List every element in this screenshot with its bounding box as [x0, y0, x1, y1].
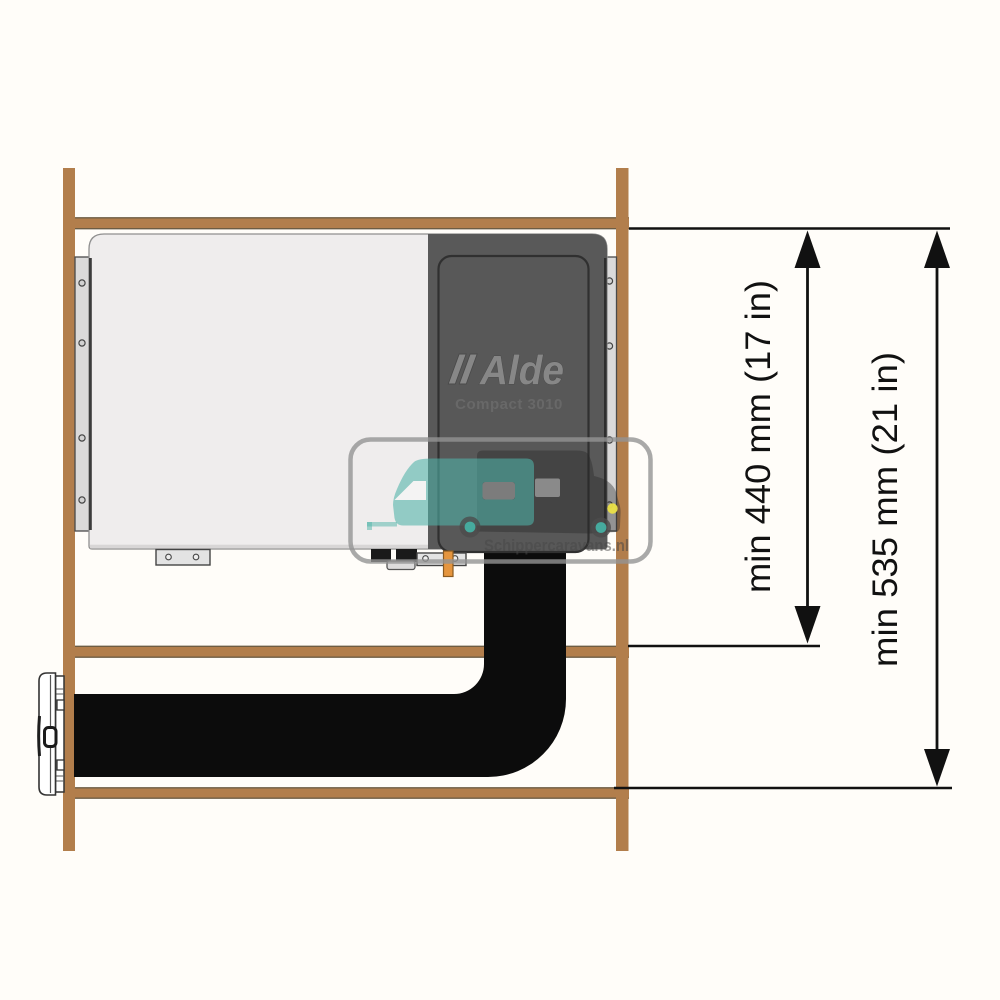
svg-text:Schippercaravans.nl: Schippercaravans.nl: [484, 537, 629, 555]
svg-text:min 440 mm (17 in): min 440 mm (17 in): [739, 280, 778, 593]
svg-text:Compact 3010: Compact 3010: [455, 396, 563, 413]
svg-text:Alde: Alde: [479, 347, 564, 393]
svg-text:min 535 mm (21 in): min 535 mm (21 in): [866, 352, 905, 667]
